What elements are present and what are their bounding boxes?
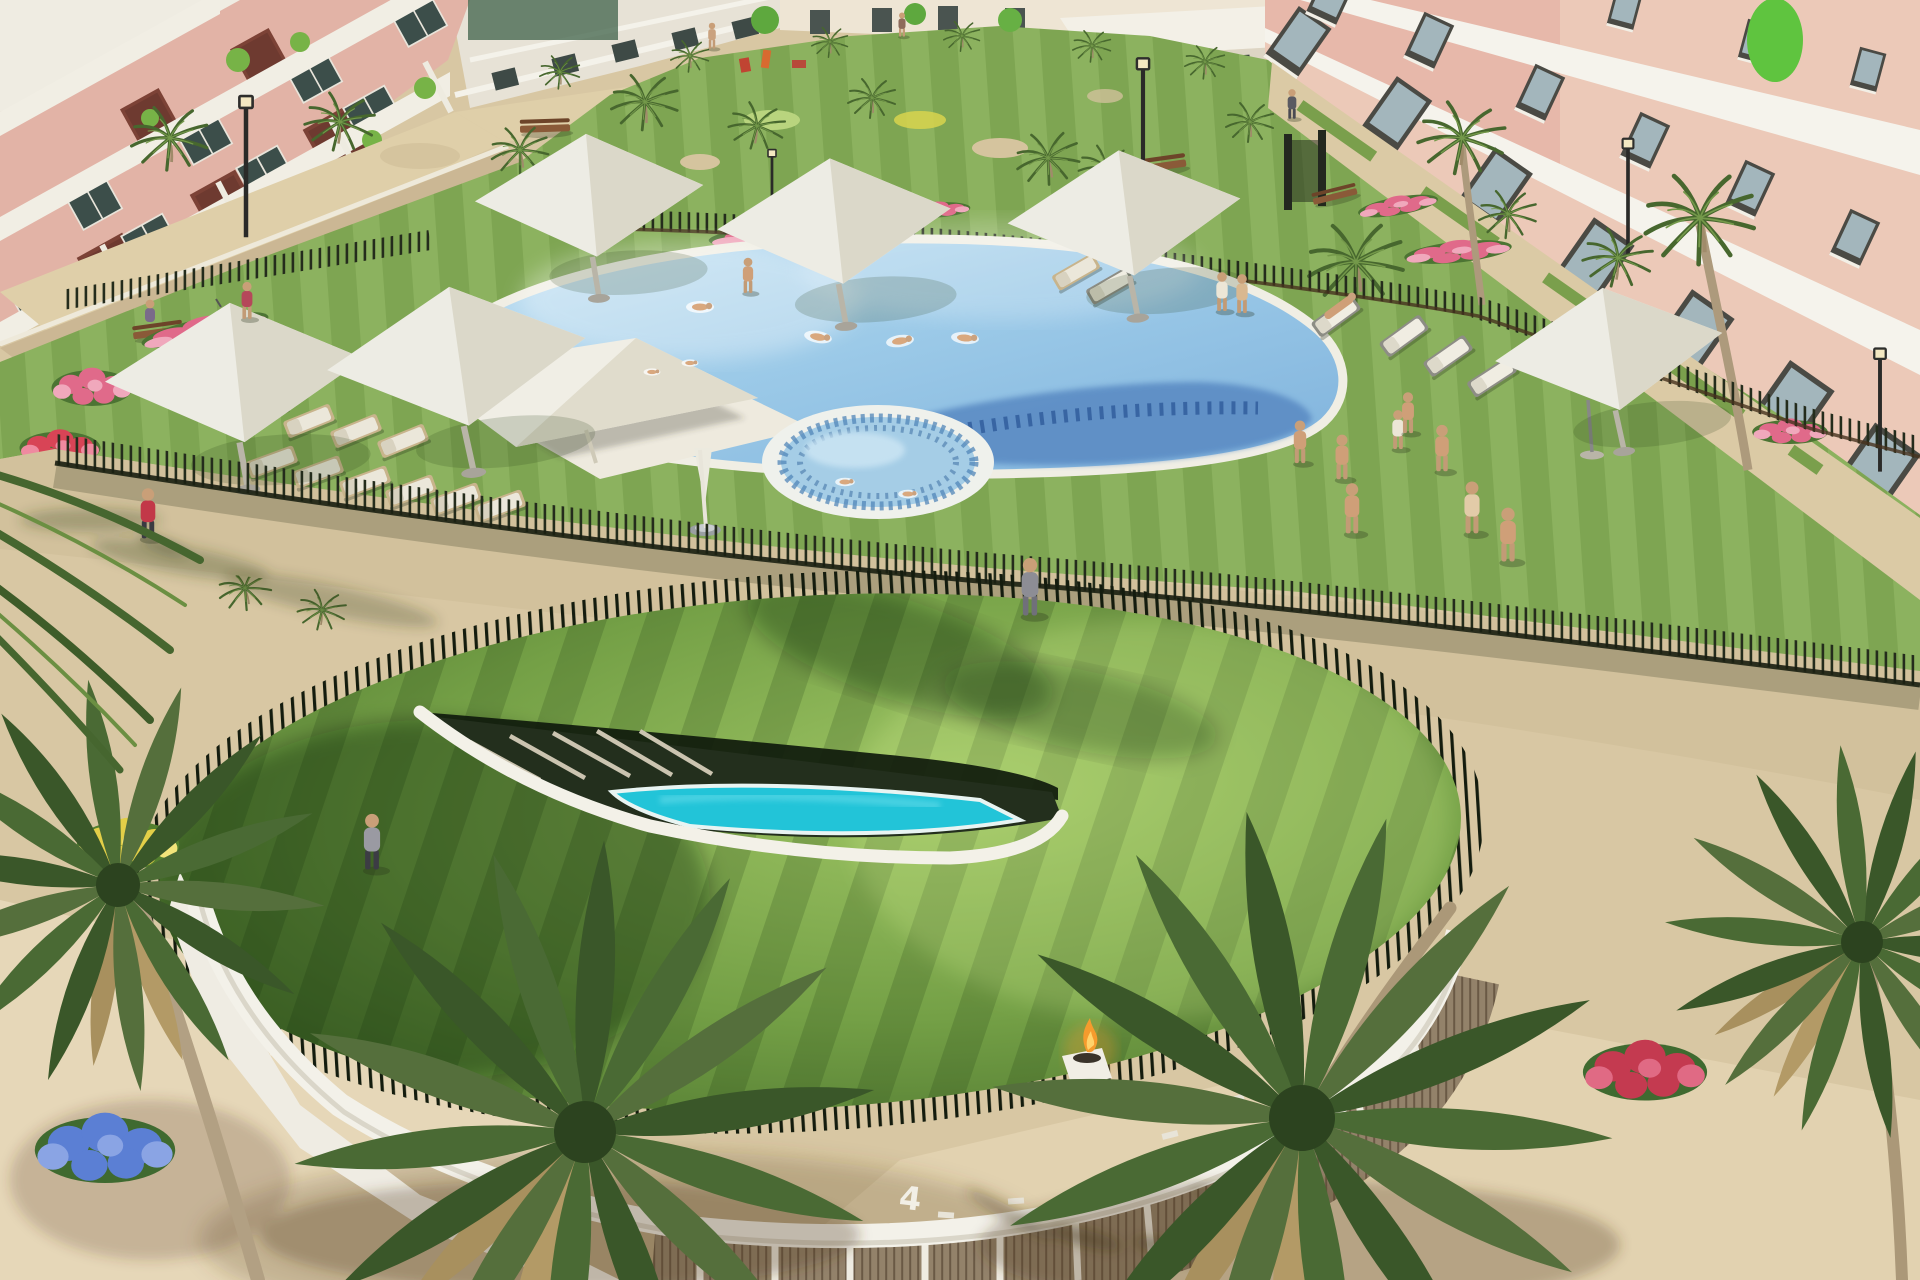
resort-aerial-render: 4 — [0, 0, 1920, 1280]
swimmer — [644, 368, 661, 375]
swimmer — [898, 490, 918, 498]
unit-number: 4 — [897, 1178, 924, 1218]
sports-court — [468, 0, 618, 40]
swimmer — [686, 301, 714, 313]
spa-pool — [762, 405, 994, 519]
topiary — [1747, 0, 1803, 82]
swimmer — [835, 478, 855, 486]
rendered-scene: 4 — [0, 0, 1920, 1280]
person-seated — [145, 300, 155, 322]
spa-highlight — [805, 432, 905, 468]
swimmer — [682, 359, 699, 366]
